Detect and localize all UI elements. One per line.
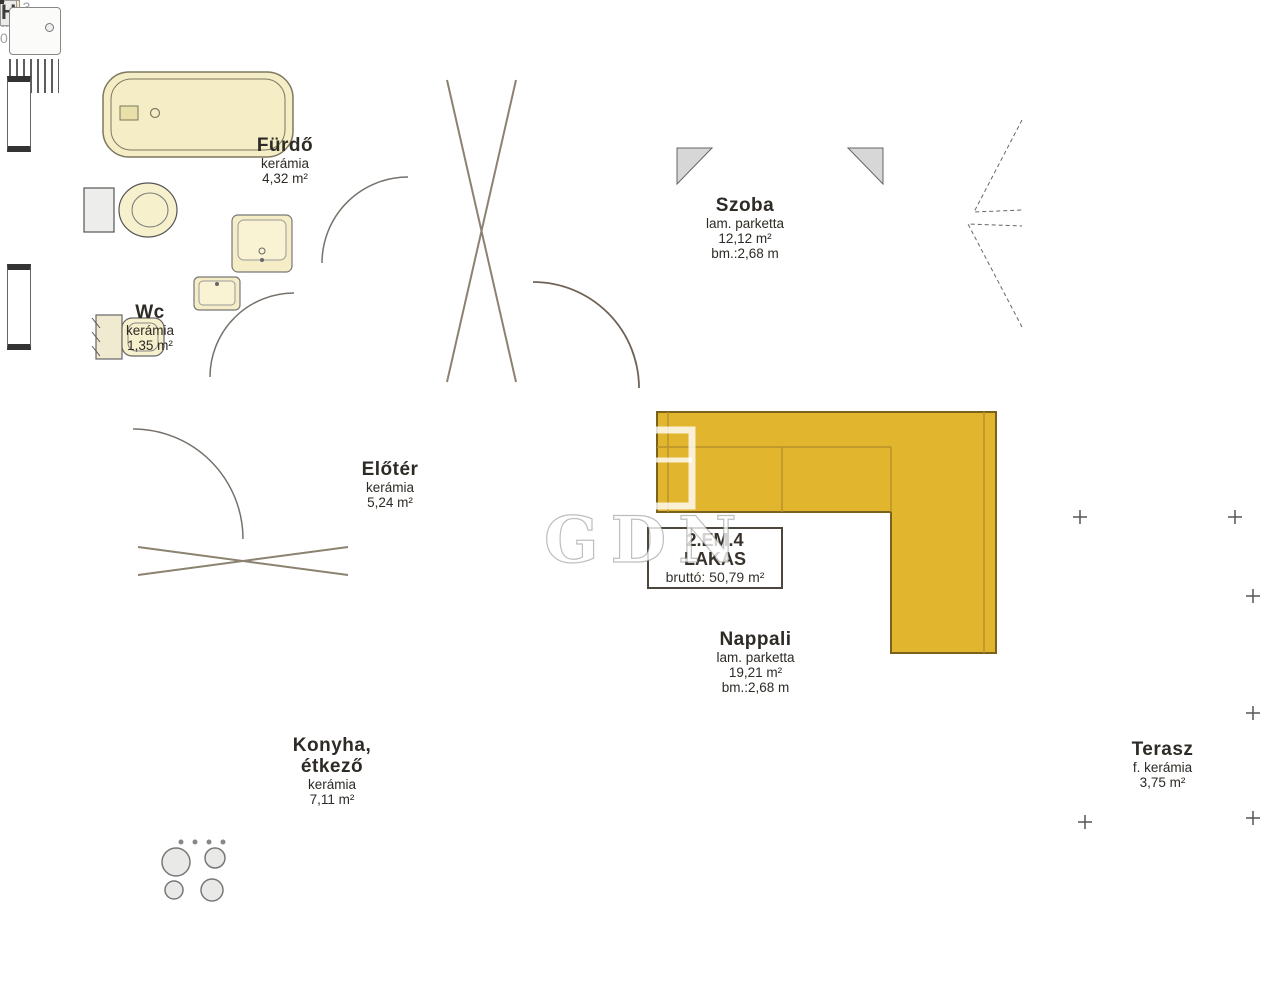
stove-burners bbox=[162, 840, 226, 902]
furdo-area: 4,32 m² bbox=[210, 172, 360, 187]
nappali-name: Nappali bbox=[648, 630, 863, 651]
floor-plan: ló 13. ámia 0 m² M H bbox=[0, 0, 1280, 1007]
sink-faucet-dot bbox=[45, 23, 54, 32]
szoba-material: lam. parketta bbox=[650, 217, 840, 232]
szoba-area: 12,12 m² bbox=[650, 232, 840, 247]
room-label-furdo: Fürdő kerámia 4,32 m² bbox=[210, 136, 360, 187]
unit-type: LAKAS bbox=[649, 550, 781, 569]
toilet-bathroom bbox=[84, 183, 177, 237]
sink-wc bbox=[194, 277, 240, 310]
wardrobe-hall-x bbox=[138, 547, 348, 575]
szoba-name: Szoba bbox=[650, 196, 840, 217]
wc-door-arc bbox=[210, 293, 294, 377]
konyha-material: kerámia bbox=[257, 778, 407, 793]
room-label-nappali: Nappali lam. parketta 19,21 m² bm.:2,68 … bbox=[648, 630, 863, 695]
bathroom-window bbox=[7, 76, 31, 152]
wc-name: Wc bbox=[100, 303, 200, 324]
nappali-area: 19,21 m² bbox=[648, 666, 863, 681]
unit-floor: 2.EM.4 bbox=[649, 531, 781, 550]
room-label-terasz: Terasz f. kerámia 3,75 m² bbox=[1085, 740, 1240, 791]
entry-door-arc bbox=[133, 429, 243, 539]
szoba-ceiling: bm.:2,68 m bbox=[650, 247, 840, 262]
room-label-eloter: Előtér kerámia 5,24 m² bbox=[315, 460, 465, 511]
eloter-name: Előtér bbox=[315, 460, 465, 481]
terasz-area: 3,75 m² bbox=[1085, 776, 1240, 791]
watermark-logo bbox=[561, 426, 692, 515]
sink-bathroom bbox=[232, 215, 292, 272]
konyha-name-1: Konyha, bbox=[257, 736, 407, 757]
bathroom-door-arc bbox=[322, 177, 408, 263]
eloter-material: kerámia bbox=[315, 481, 465, 496]
konyha-name-2: étkező bbox=[257, 757, 407, 778]
nappali-material: lam. parketta bbox=[648, 651, 863, 666]
unit-gross-area: bruttó: 50,79 m² bbox=[649, 570, 781, 585]
casement-symbols bbox=[968, 120, 1022, 327]
kitchen-sink-basin bbox=[9, 7, 61, 55]
room-label-konyha: Konyha, étkező kerámia 7,11 m² bbox=[257, 736, 407, 807]
furdo-material: kerámia bbox=[210, 157, 360, 172]
room-label-wc: Wc kerámia 1,35 m² bbox=[100, 303, 200, 354]
nappali-ceiling: bm.:2,68 m bbox=[648, 681, 863, 696]
room-label-szoba: Szoba lam. parketta 12,12 m² bm.:2,68 m bbox=[650, 196, 840, 261]
terasz-material: f. kerámia bbox=[1085, 761, 1240, 776]
konyha-area: 7,11 m² bbox=[257, 793, 407, 808]
bed-fold-left bbox=[677, 148, 712, 184]
watermark-layer: GDN bbox=[0, 0, 1280, 1007]
wc-area: 1,35 m² bbox=[100, 339, 200, 354]
bed-fold-right bbox=[848, 148, 883, 184]
wc-material: kerámia bbox=[100, 324, 200, 339]
fixtures-layer bbox=[0, 0, 1280, 1007]
eloter-area: 5,24 m² bbox=[315, 496, 465, 511]
terasz-name: Terasz bbox=[1085, 740, 1240, 761]
terrace-door-window bbox=[0, 0, 4, 4]
wardrobe-bedroom-x bbox=[447, 80, 516, 382]
furdo-name: Fürdő bbox=[210, 136, 360, 157]
bedroom-door-arc bbox=[533, 282, 639, 388]
wc-window bbox=[7, 264, 31, 350]
unit-info-box: 2.EM.4 LAKAS bruttó: 50,79 m² bbox=[647, 527, 783, 589]
